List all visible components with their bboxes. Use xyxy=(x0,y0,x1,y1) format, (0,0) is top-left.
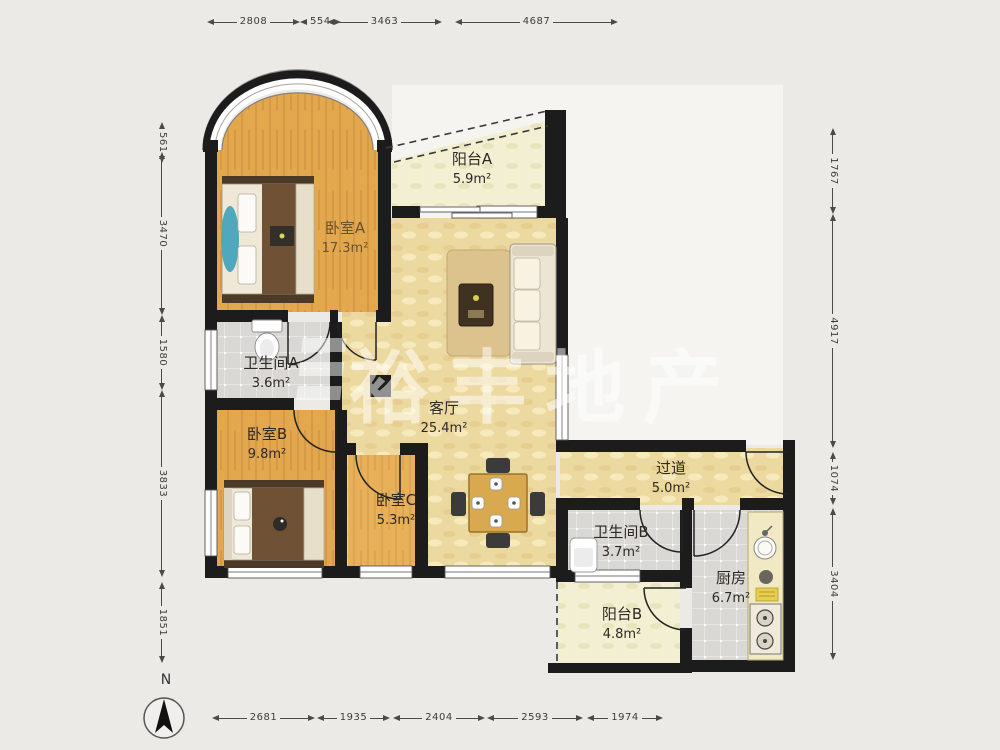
dimension-top-4: 4687 xyxy=(455,16,618,28)
dimension-right-3: 1074 xyxy=(827,452,839,505)
floor-plan-drawing xyxy=(0,0,1000,750)
dimension-left-1: 561 xyxy=(156,122,168,152)
bed-a xyxy=(221,176,314,303)
north-compass-icon: N xyxy=(136,672,196,744)
dimension-right-1: 1767 xyxy=(827,128,839,214)
label-bathroom-b: 卫生间B 3.7m² xyxy=(593,522,648,563)
dimension-right-4: 3404 xyxy=(827,508,839,660)
north-label: N xyxy=(136,672,196,688)
bed-b xyxy=(224,480,324,568)
label-kitchen: 厨房 6.7m² xyxy=(712,568,751,609)
kitchen-counter xyxy=(748,512,783,660)
sliding-door xyxy=(452,213,512,218)
label-bedroom-c: 卧室C 5.3m² xyxy=(376,490,416,531)
dimension-top-3: 3463 xyxy=(327,16,442,28)
dimension-bottom-5: 1974 xyxy=(587,712,663,724)
dimension-right-2: 4917 xyxy=(827,214,839,448)
label-bedroom-a: 卧室A 17.3m² xyxy=(322,218,369,259)
label-balcony-b: 阳台B 4.8m² xyxy=(602,604,642,645)
label-bathroom-a: 卫生间A 3.6m² xyxy=(243,353,298,394)
dimension-left-4: 3833 xyxy=(156,390,168,577)
dimension-top-2: 554 xyxy=(300,16,327,28)
dimension-top-1: 2808 xyxy=(207,16,300,28)
floor-plan-image: 裕丰地产 阳台A 5.9m² 卧室A 17.3m² 卫生间A 3.6m² 卧室B… xyxy=(0,0,1000,750)
dimension-bottom-2: 1935 xyxy=(317,712,390,724)
dimension-bottom-3: 2404 xyxy=(393,712,485,724)
dimension-left-5: 1851 xyxy=(156,582,168,663)
dimension-left-2: 3470 xyxy=(156,152,168,315)
label-balcony-a: 阳台A 5.9m² xyxy=(452,149,492,190)
label-bedroom-b: 卧室B 9.8m² xyxy=(247,424,287,465)
dimension-bottom-4: 2593 xyxy=(487,712,583,724)
dimension-left-3: 1580 xyxy=(156,315,168,390)
label-living-room: 客厅 25.4m² xyxy=(421,398,468,439)
living-furniture xyxy=(447,244,556,364)
sliding-door xyxy=(420,207,480,212)
dimension-bottom-1: 2681 xyxy=(212,712,315,724)
label-hallway: 过道 5.0m² xyxy=(652,458,691,499)
